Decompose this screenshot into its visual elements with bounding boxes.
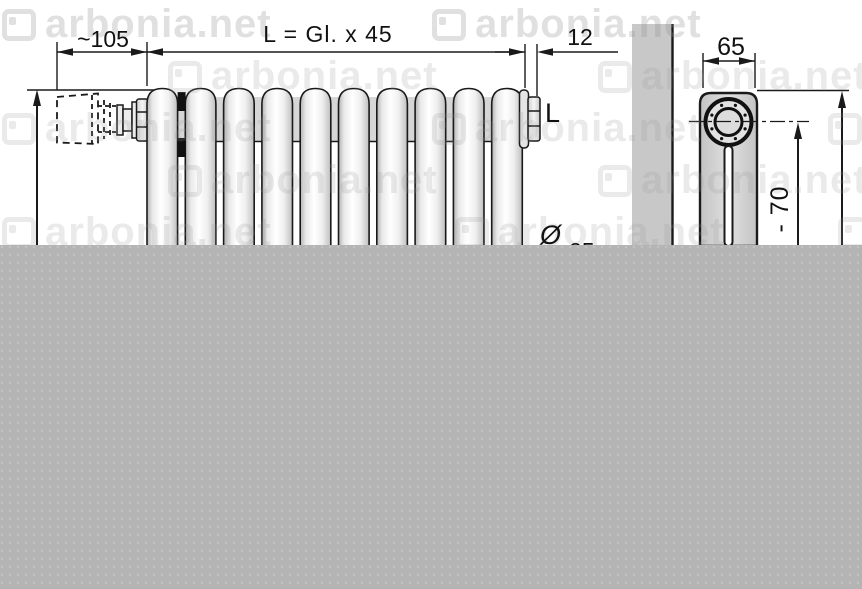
radiator-datasheet-image: arbonia.net arbonia.net arbonia.net arbo… — [0, 0, 862, 589]
radiator-front-view — [27, 89, 540, 247]
dimension-lines-front — [57, 42, 618, 96]
end-connection-nut — [520, 90, 541, 148]
weld-mark-bottom — [178, 138, 186, 157]
radiator-side-view — [700, 93, 757, 246]
wall-section — [632, 24, 673, 246]
valve-body — [117, 99, 149, 141]
gray-mask-overlay — [0, 245, 862, 589]
weld-mark-top — [178, 92, 186, 111]
thermostat-head — [57, 94, 117, 145]
